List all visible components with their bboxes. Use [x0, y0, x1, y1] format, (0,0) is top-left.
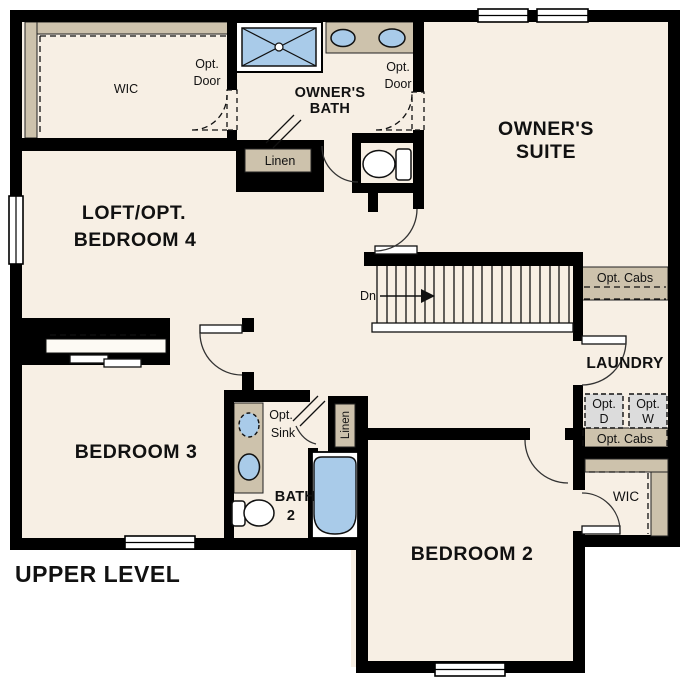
loft-label-2: BEDROOM 4 — [74, 229, 197, 251]
bedroom3-label: BEDROOM 3 — [75, 441, 198, 463]
wic-bottom-right-shelf — [651, 472, 668, 536]
owners-suite-label-1: OWNER'S — [498, 118, 594, 140]
opt-dryer-label-2: D — [599, 412, 608, 426]
opt-door-left-opening — [227, 90, 237, 130]
wic-bottom-label: WIC — [613, 489, 639, 504]
floor-plan-drawing: WIC Opt. Door OWNER'S BATH Opt. Door OWN… — [0, 0, 687, 687]
linen-top-label: Linen — [265, 154, 296, 168]
optional-sink-icon — [239, 413, 259, 437]
shower-icon — [236, 22, 322, 72]
plan-title: UPPER LEVEL — [15, 561, 180, 587]
window-icon — [435, 663, 505, 676]
bath2-label-1: BATH — [275, 489, 315, 505]
toilet-icon — [232, 500, 274, 526]
sliding-door-icon — [104, 359, 141, 367]
opt-door-right-opening — [412, 92, 424, 130]
opt-door-right-label-1: Opt. — [386, 60, 410, 74]
opt-sink-label-1: Opt. — [269, 408, 293, 422]
opt-washer-label-1: Opt. — [636, 397, 660, 411]
toilet-icon — [363, 149, 411, 180]
opt-door-left-label-2: Door — [193, 74, 220, 88]
bedroom3-closet-interior — [46, 339, 166, 353]
owners-bath-label-2: BATH — [310, 101, 350, 117]
opt-sink-label-2: Sink — [271, 426, 296, 440]
bathtub-icon — [312, 452, 358, 538]
opt-washer-label-2: W — [642, 412, 654, 426]
laundry-label: LAUNDRY — [586, 355, 664, 372]
loft-label-1: LOFT/OPT. — [82, 202, 186, 224]
bedroom2-label: BEDROOM 2 — [411, 543, 534, 565]
owners-bath-label-1: OWNER'S — [295, 85, 366, 101]
wic-left-shelf-icon — [25, 22, 37, 138]
window-icon — [125, 536, 195, 549]
owners-suite-label-2: SUITE — [516, 141, 576, 163]
floor-plan-page: WIC Opt. Door OWNER'S BATH Opt. Door OWN… — [0, 0, 687, 687]
linen-bath2-label: Linen — [340, 411, 352, 439]
opt-door-left-label-1: Opt. — [195, 57, 219, 71]
wic-top-label: WIC — [114, 82, 138, 96]
stair-treads — [377, 266, 569, 324]
bath2-label-2: 2 — [287, 508, 295, 524]
wic-bottom-top-shelf — [585, 459, 668, 472]
window-icon — [537, 9, 588, 22]
stairs-dn-label: Dn — [360, 289, 376, 303]
opt-dryer-label-1: Opt. — [592, 397, 616, 411]
wic-top-shelf-icon — [25, 22, 230, 34]
opt-cabs-top-label: Opt. Cabs — [597, 271, 653, 285]
stair-rail — [372, 323, 573, 332]
opt-door-right-label-2: Door — [384, 77, 411, 91]
window-icon — [478, 9, 528, 22]
opt-cabs-bottom-label: Opt. Cabs — [597, 432, 653, 446]
sliding-door-icon — [70, 355, 108, 363]
window-icon — [9, 196, 23, 264]
